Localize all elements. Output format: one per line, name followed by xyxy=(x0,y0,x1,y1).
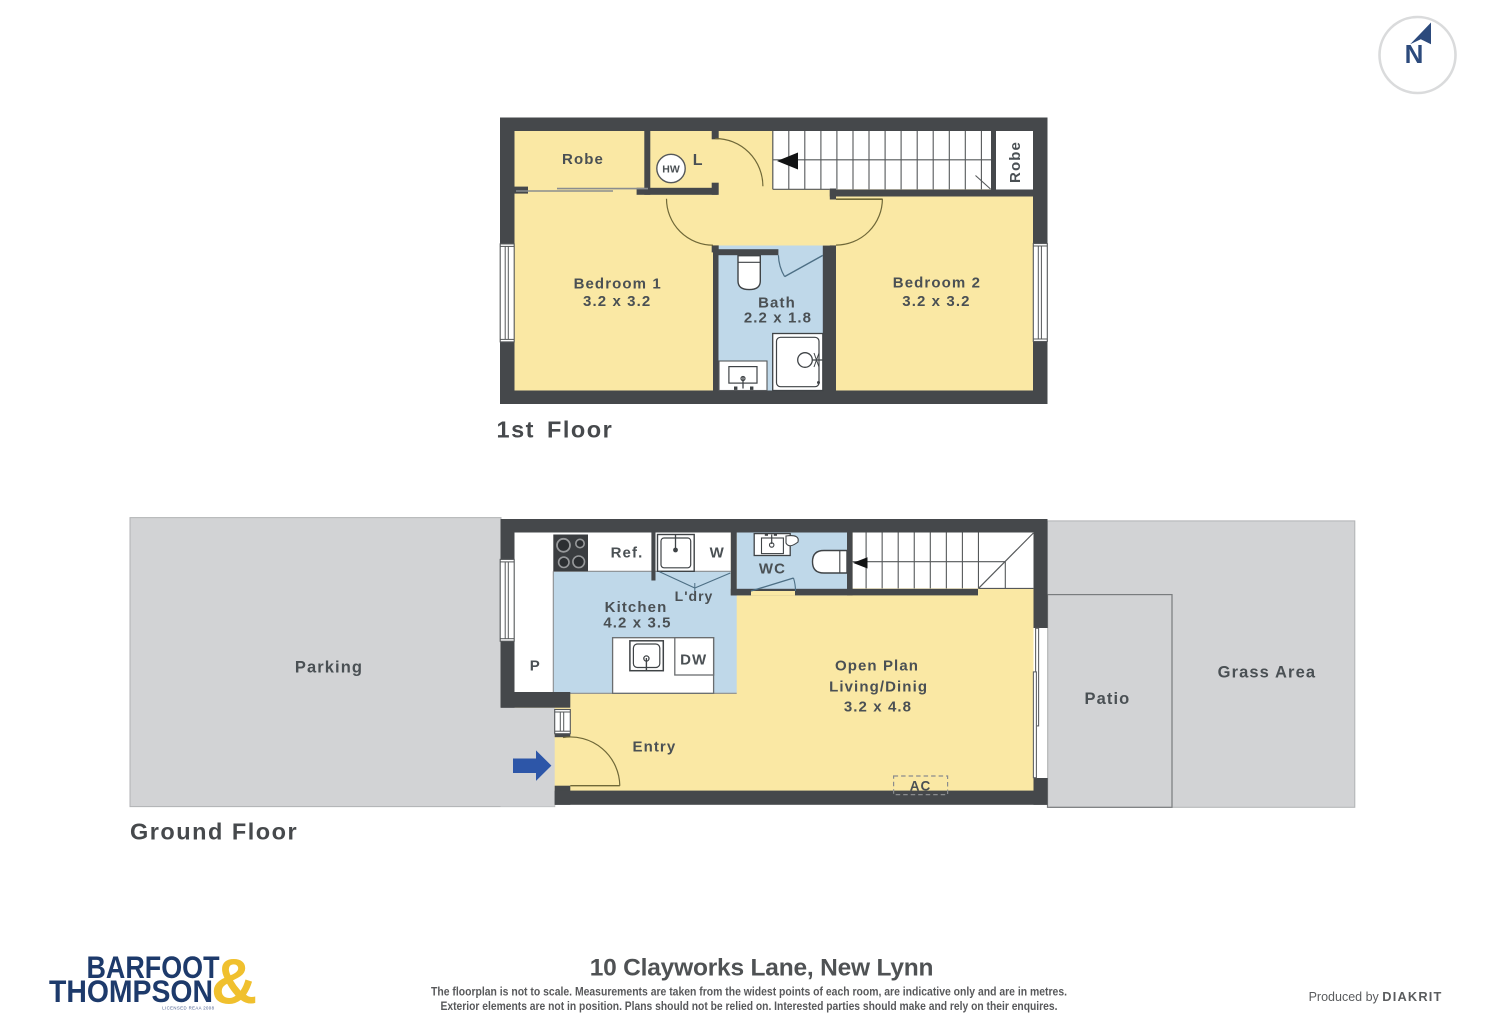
svg-text:Bedroom 1: Bedroom 1 xyxy=(574,275,662,292)
svg-text:Patio: Patio xyxy=(1084,690,1130,708)
svg-text:W: W xyxy=(710,545,725,562)
svg-text:Kitchen: Kitchen xyxy=(605,599,668,616)
svg-text:HW: HW xyxy=(662,163,680,175)
svg-text:N: N xyxy=(1405,39,1424,69)
svg-text:Produced by DIAKRIT: Produced by DIAKRIT xyxy=(1309,989,1443,1004)
svg-text:P: P xyxy=(530,658,541,675)
svg-text:L'dry: L'dry xyxy=(675,588,714,604)
svg-text:Ref.: Ref. xyxy=(611,544,644,561)
svg-text:Ground Floor: Ground Floor xyxy=(130,819,298,845)
svg-text:Parking: Parking xyxy=(295,658,363,676)
svg-text:2.2 x 1.8: 2.2 x 1.8 xyxy=(744,309,812,326)
svg-text:1st Floor: 1st Floor xyxy=(497,417,614,443)
svg-text:3.2 x 3.2: 3.2 x 3.2 xyxy=(583,293,651,310)
svg-text:3.2 x 3.2: 3.2 x 3.2 xyxy=(902,293,970,310)
svg-text:3.2 x 4.8: 3.2 x 4.8 xyxy=(844,698,912,715)
svg-text:Exterior elements are not in p: Exterior elements are not in position. P… xyxy=(441,999,1058,1013)
svg-text:Grass Area: Grass Area xyxy=(1218,664,1316,682)
svg-text:Bedroom 2: Bedroom 2 xyxy=(893,275,981,292)
svg-text:&: & xyxy=(211,946,257,1018)
svg-text:Robe: Robe xyxy=(1007,141,1024,183)
svg-text:The floorplan is not to scale.: The floorplan is not to scale. Measureme… xyxy=(431,985,1067,999)
svg-text:WC: WC xyxy=(759,560,786,577)
svg-text:10 Clayworks Lane, New Lynn: 10 Clayworks Lane, New Lynn xyxy=(590,955,934,982)
svg-text:LICENSED REAA 2008: LICENSED REAA 2008 xyxy=(162,1006,214,1011)
svg-text:Entry: Entry xyxy=(632,739,676,756)
svg-text:THOMPSON: THOMPSON xyxy=(49,973,213,1009)
svg-text:L: L xyxy=(693,152,703,169)
svg-text:AC: AC xyxy=(910,778,932,793)
svg-text:4.2 x 3.5: 4.2 x 3.5 xyxy=(603,615,671,632)
svg-text:Robe: Robe xyxy=(562,151,604,168)
svg-text:DW: DW xyxy=(680,651,707,668)
svg-text:Open Plan: Open Plan xyxy=(835,658,919,675)
svg-text:Living/Dinig: Living/Dinig xyxy=(829,679,928,696)
